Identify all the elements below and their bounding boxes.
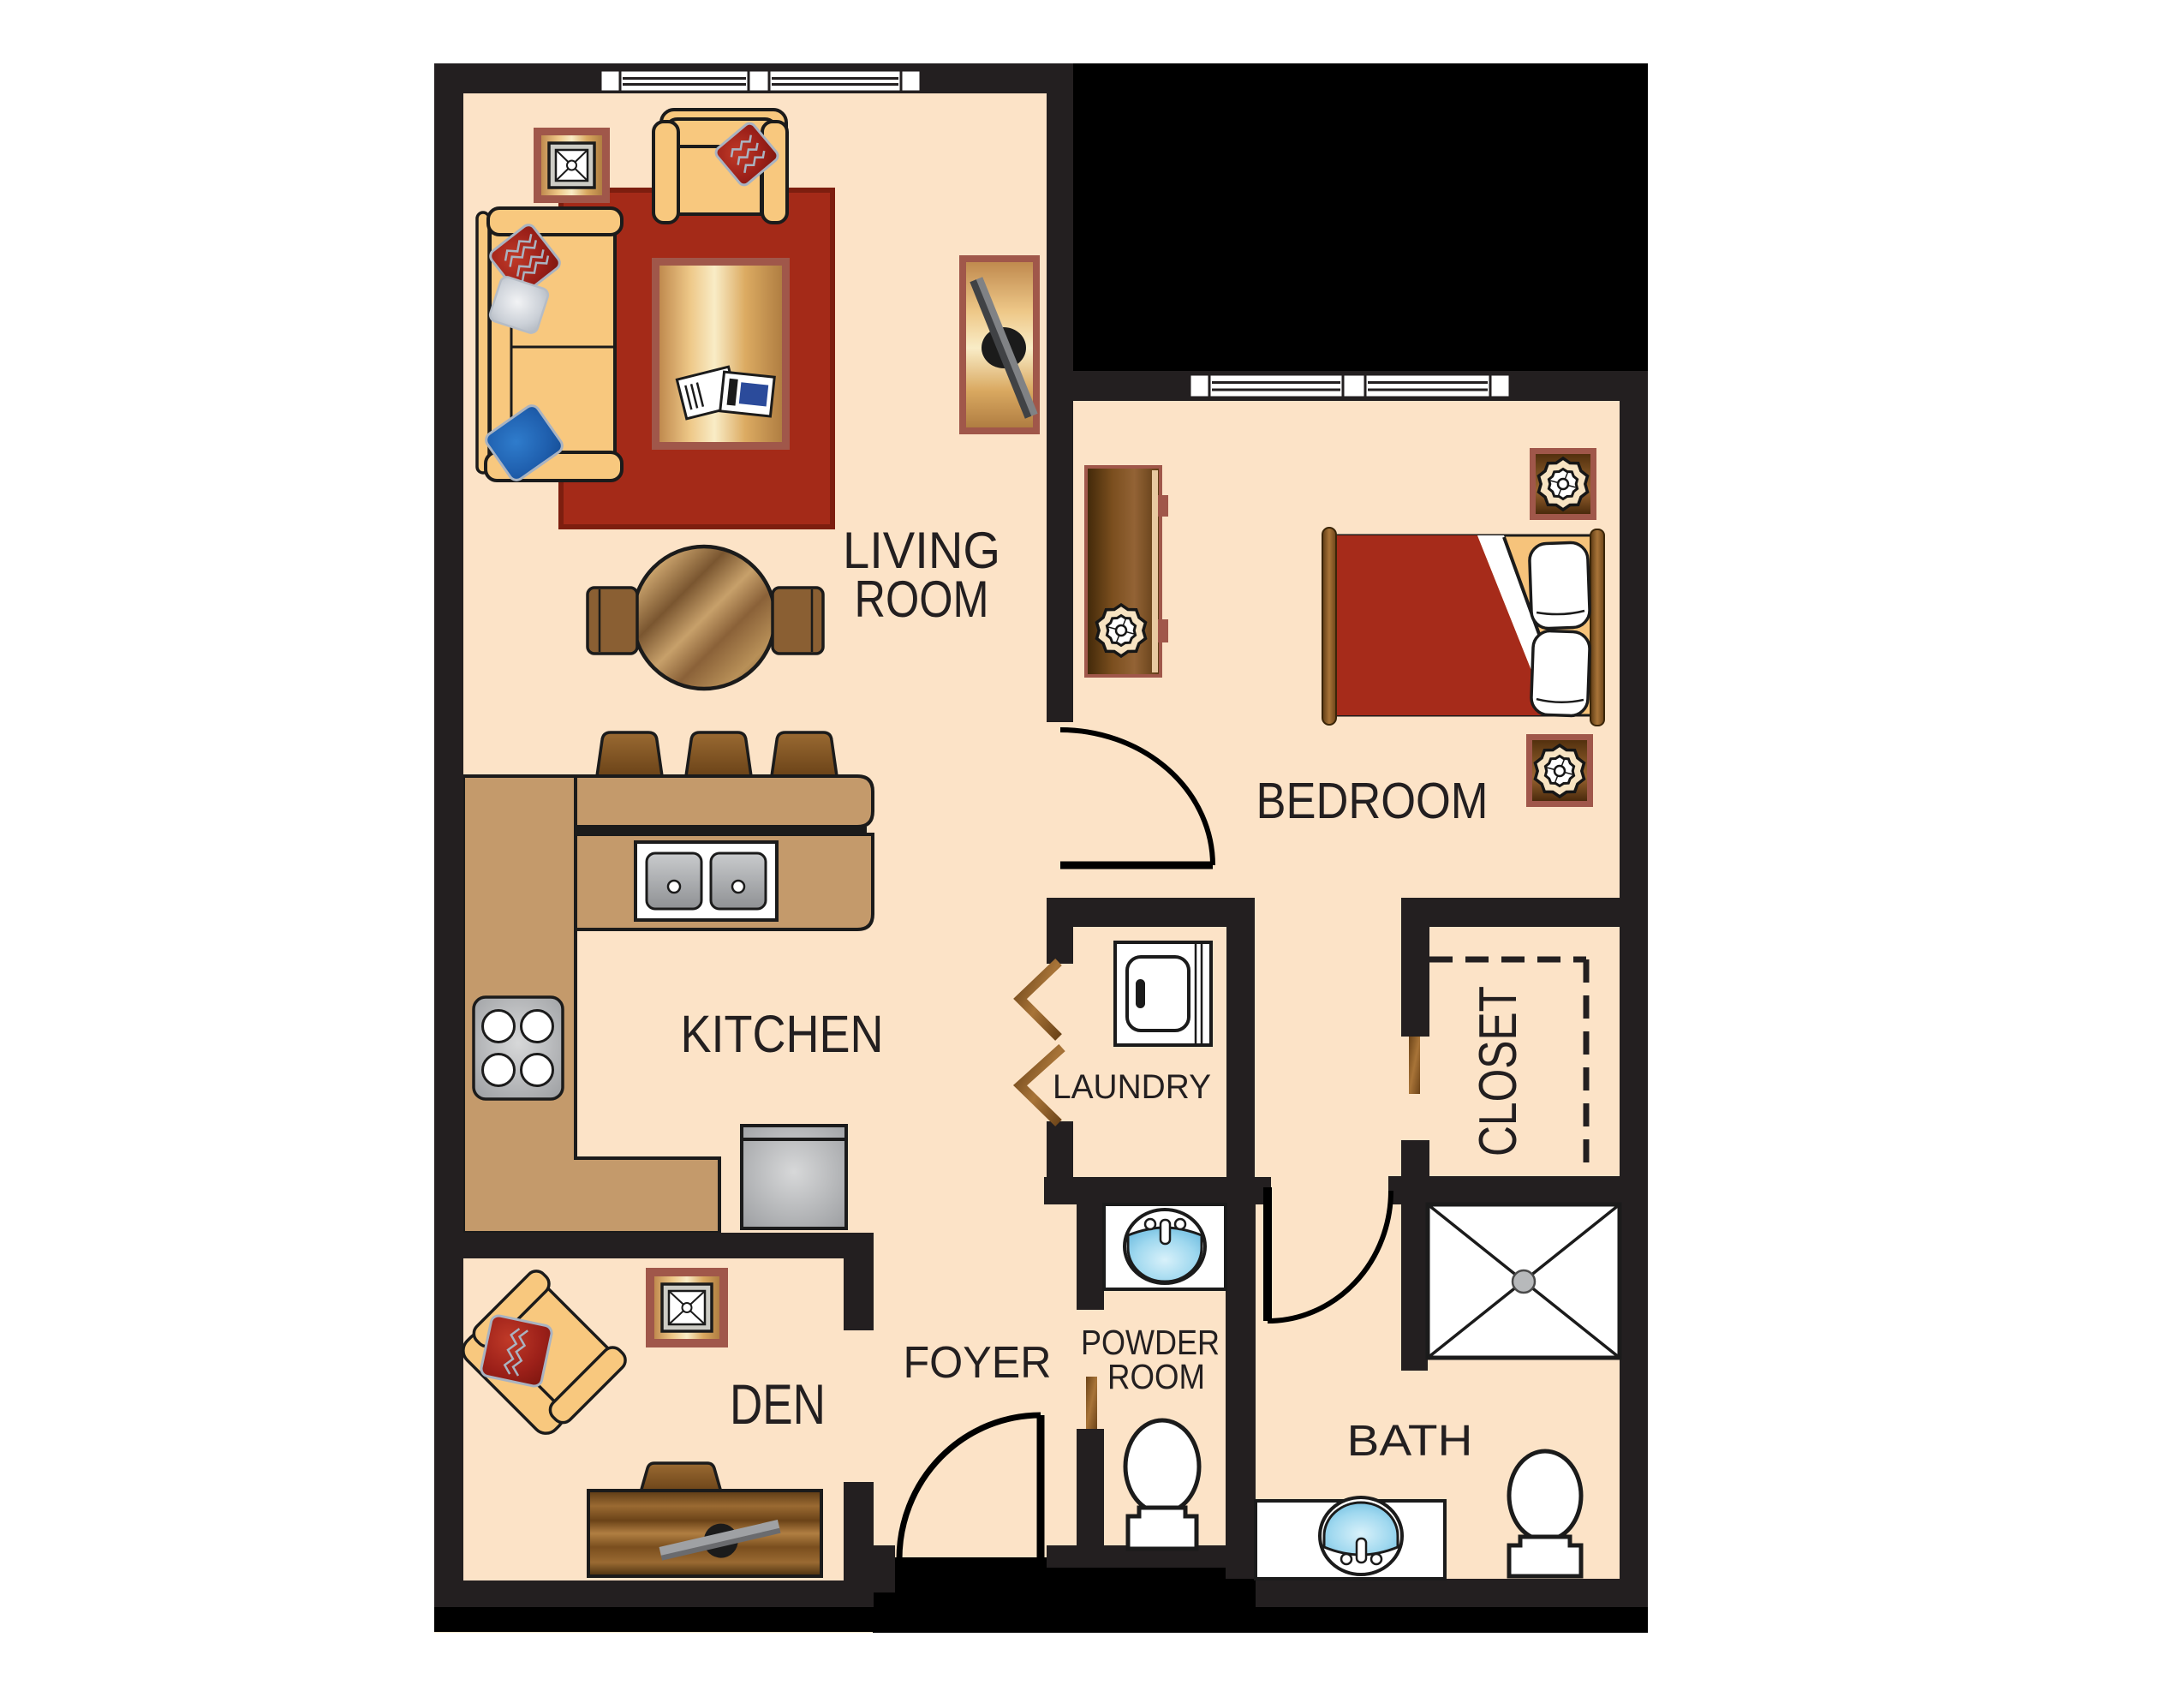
svg-text:KITCHEN: KITCHEN [681, 1005, 884, 1063]
svg-text:ROOM: ROOM [855, 571, 989, 628]
svg-text:BEDROOM: BEDROOM [1256, 773, 1489, 829]
svg-text:LAUNDRY: LAUNDRY [1053, 1068, 1211, 1106]
svg-text:CLOSET: CLOSET [1469, 986, 1528, 1156]
svg-text:BATH: BATH [1347, 1416, 1473, 1465]
svg-text:FOYER: FOYER [904, 1338, 1052, 1388]
svg-text:DEN: DEN [730, 1372, 826, 1436]
svg-text:ROOM: ROOM [1107, 1357, 1205, 1396]
